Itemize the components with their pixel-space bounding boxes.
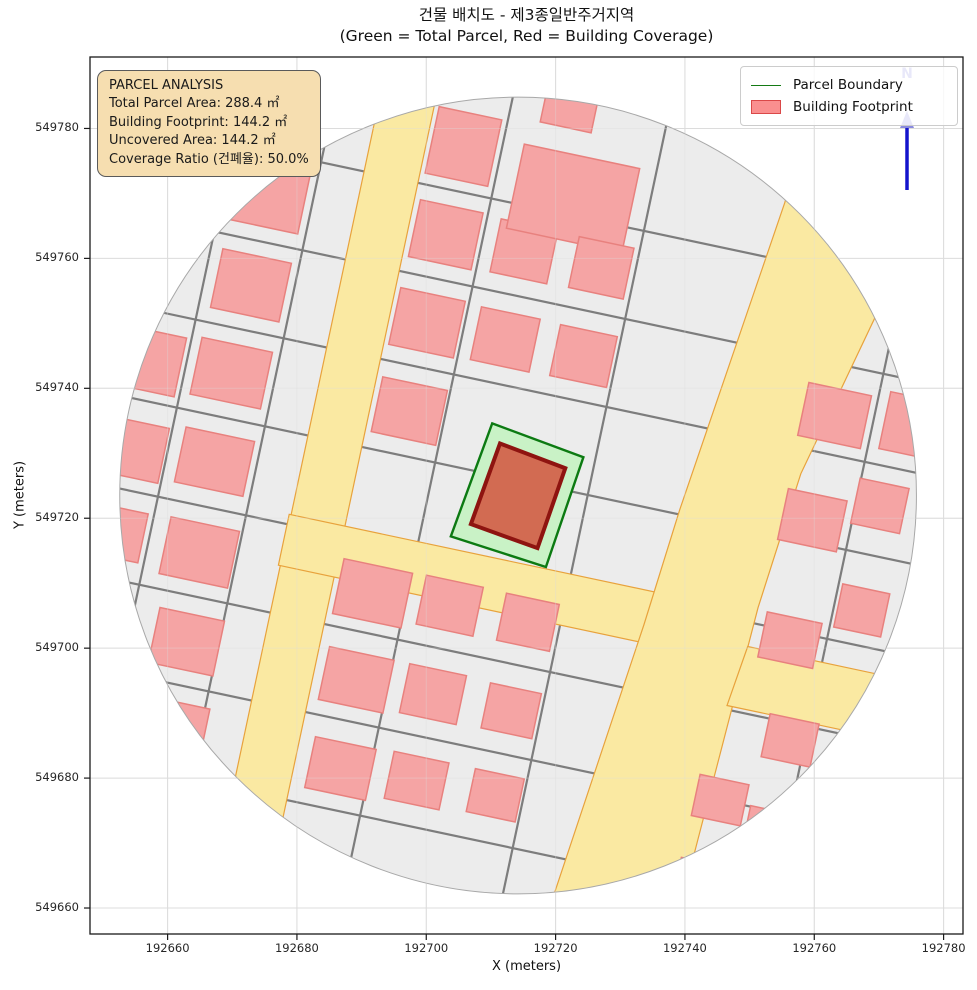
building	[399, 664, 466, 725]
legend-label: Building Footprint	[793, 99, 913, 115]
chart-title-block: 건물 배치도 - 제3종일반주거지역 (Green = Total Parcel…	[90, 5, 963, 47]
building	[569, 237, 635, 300]
legend-entry: Parcel Boundary	[751, 74, 947, 96]
building	[425, 107, 502, 187]
building	[466, 769, 524, 822]
building	[742, 806, 797, 855]
legend-line-swatch	[751, 85, 781, 86]
building	[851, 478, 910, 533]
legend-label: Parcel Boundary	[793, 77, 903, 93]
figure: N 건물 배치도 - 제3종일반주거지역 (Green = Total Parc…	[0, 0, 977, 990]
parcel-analysis-line: Total Parcel Area: 288.4 ㎡	[109, 95, 309, 113]
legend-entry: Building Footprint	[751, 96, 947, 118]
parcel-analysis-line: Building Footprint: 144.2 ㎡	[109, 114, 309, 132]
legend: Parcel BoundaryBuilding Footprint	[740, 66, 958, 126]
building	[674, 857, 727, 904]
building	[470, 307, 540, 372]
building	[389, 288, 466, 358]
building	[834, 584, 890, 637]
chart-subtitle: (Green = Total Parcel, Red = Building Co…	[90, 26, 963, 47]
building	[550, 325, 618, 388]
parcel-analysis-box: PARCEL ANALYSISTotal Parcel Area: 288.4 …	[97, 70, 321, 177]
building	[408, 200, 483, 270]
legend-patch-swatch	[751, 100, 781, 114]
chart-title: 건물 배치도 - 제3종일반주거지역	[90, 5, 963, 26]
parcel-analysis-line: Coverage Ratio (건폐율): 50.0%	[109, 151, 309, 169]
parcel-analysis-line: Uncovered Area: 144.2 ㎡	[109, 132, 309, 150]
building	[497, 593, 560, 651]
building	[879, 392, 940, 459]
building	[761, 714, 819, 767]
parcel-analysis-line: PARCEL ANALYSIS	[109, 77, 309, 95]
building	[83, 502, 148, 563]
building	[481, 683, 541, 739]
